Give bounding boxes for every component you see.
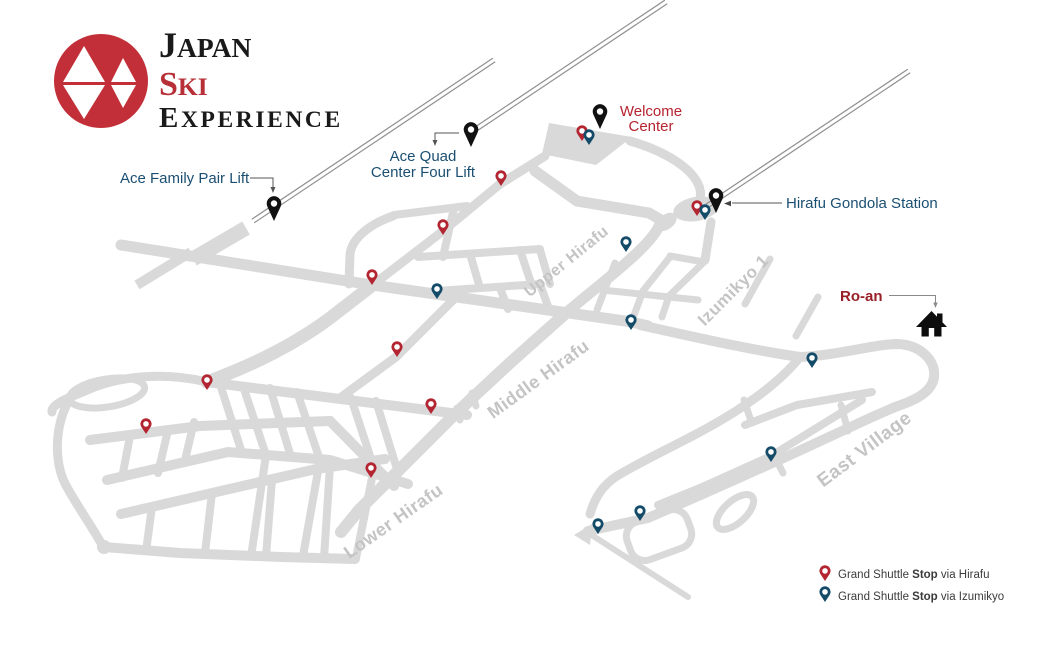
svg-text:Ace Family Pair Lift: Ace Family Pair Lift	[120, 170, 250, 187]
svg-text:Center Four Lift: Center Four Lift	[371, 164, 476, 181]
svg-text:SKI: SKI	[159, 66, 208, 103]
svg-text:Ace Quad: Ace Quad	[390, 148, 457, 165]
svg-text:Hirafu Gondola Station: Hirafu Gondola Station	[786, 195, 938, 212]
svg-text:Center: Center	[628, 118, 673, 135]
svg-text:Grand Shuttle Stop via Izumiky: Grand Shuttle Stop via Izumikyo	[838, 591, 1004, 603]
svg-text:Ro-an: Ro-an	[840, 288, 883, 305]
svg-text:Grand Shuttle Stop via Hirafu: Grand Shuttle Stop via Hirafu	[838, 569, 990, 581]
svg-text:EXPERIENCE: EXPERIENCE	[159, 102, 343, 134]
